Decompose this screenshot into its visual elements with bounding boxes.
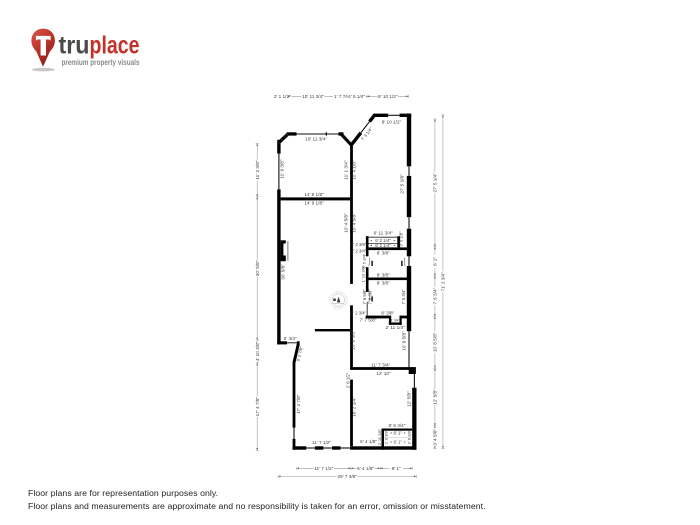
svg-text:14' 9 1/8": 14' 9 1/8" xyxy=(304,192,324,197)
svg-text:17' 4 7/8": 17' 4 7/8" xyxy=(255,397,260,417)
svg-text:7' 6 3/8": 7' 6 3/8" xyxy=(367,289,372,305)
svg-text:2' 8 1/2": 2' 8 1/2" xyxy=(345,372,350,388)
svg-text:2' 5 7/8": 2' 5 7/8" xyxy=(276,131,291,146)
svg-text:10' 4 5/8": 10' 4 5/8" xyxy=(343,213,348,233)
svg-text:12' 5/8": 12' 5/8" xyxy=(406,391,411,407)
svg-text:11' 1 3/4": 11' 1 3/4" xyxy=(343,160,348,179)
svg-text:10' 11 3/4": 10' 11 3/4" xyxy=(305,137,327,142)
svg-text:10' 8 5/8": 10' 8 5/8" xyxy=(351,330,356,350)
svg-text:1' 3/4": 1' 3/4" xyxy=(391,319,400,323)
svg-text:17' 4 7/8": 17' 4 7/8" xyxy=(296,394,301,414)
svg-text:6' 2 1/4": 6' 2 1/4" xyxy=(375,243,391,248)
svg-text:10' 8 5/8": 10' 8 5/8" xyxy=(433,332,438,352)
svg-text:2' 2 3/8": 2' 2 3/8" xyxy=(351,242,367,247)
svg-text:30' 5/8": 30' 5/8" xyxy=(255,260,260,276)
svg-text:place: place xyxy=(90,32,140,60)
svg-text:7' 6 3/4": 7' 6 3/4" xyxy=(401,289,406,305)
svg-text:6' 1": 6' 1" xyxy=(394,430,403,435)
svg-text:7' 7 5/8": 7' 7 5/8" xyxy=(360,317,377,322)
svg-text:6' 4 1/8": 6' 4 1/8" xyxy=(360,439,377,444)
svg-text:11' 9 3/8": 11' 9 3/8" xyxy=(279,159,284,178)
svg-text:8' 3/8": 8' 3/8" xyxy=(381,310,394,315)
svg-text:7' 6 3/4": 7' 6 3/4" xyxy=(433,287,438,304)
svg-text:1' 10 3/8": 1' 10 3/8" xyxy=(360,265,365,282)
svg-text:2' 2 3/4": 2' 2 3/4" xyxy=(351,249,367,254)
svg-text:30' 5/8": 30' 5/8" xyxy=(281,264,286,280)
svg-text:premium property visuals: premium property visuals xyxy=(62,58,140,67)
svg-text:27' 5 1/8": 27' 5 1/8" xyxy=(400,174,405,194)
svg-text:11' 4 1/8": 11' 4 1/8" xyxy=(352,160,357,179)
svg-text:2' 8 3/8": 2' 8 3/8" xyxy=(406,429,411,444)
svg-text:12' 10": 12' 10" xyxy=(376,371,391,376)
svg-text:10' 11 3/4": 10' 11 3/4" xyxy=(302,94,324,99)
svg-text:4' 10 3/8": 4' 10 3/8" xyxy=(255,341,260,361)
svg-text:71' 2 3/4": 71' 2 3/4" xyxy=(441,272,446,292)
svg-text:6' 4 1/8": 6' 4 1/8" xyxy=(357,466,374,471)
svg-text:5' 3/4": 5' 3/4" xyxy=(284,336,297,341)
svg-text:16' 2 1/4": 16' 2 1/4" xyxy=(351,397,356,417)
svg-text:8' 10 1/2": 8' 10 1/2" xyxy=(382,119,402,124)
svg-text:4' 5 1/4": 4' 5 1/4" xyxy=(348,94,365,99)
svg-text:2' 11 1/8": 2' 11 1/8" xyxy=(377,428,382,445)
svg-text:27' 5 1/4": 27' 5 1/4" xyxy=(433,173,438,193)
svg-text:8' 3/8": 8' 3/8" xyxy=(377,251,390,256)
svg-text:10' 8 5/8": 10' 8 5/8" xyxy=(401,331,406,351)
svg-text:tru: tru xyxy=(59,32,90,60)
svg-text:6' 11 3/4": 6' 11 3/4" xyxy=(374,230,393,235)
svg-text:6' 1": 6' 1" xyxy=(394,439,403,444)
svg-text:8' 3/8": 8' 3/8" xyxy=(377,273,390,278)
svg-text:8' 10 1/2": 8' 10 1/2" xyxy=(378,94,398,99)
svg-text:10' 4 5/8": 10' 4 5/8" xyxy=(352,213,357,233)
svg-text:3' 4 5/8": 3' 4 5/8" xyxy=(433,429,438,446)
svg-text:8' 5 3/4": 8' 5 3/4" xyxy=(389,423,406,428)
svg-text:14' 9 1/8": 14' 9 1/8" xyxy=(304,201,324,206)
svg-text:2' 11 1/4": 2' 11 1/4" xyxy=(386,325,405,330)
svg-text:29' 7 3/8": 29' 7 3/8" xyxy=(337,474,357,479)
svg-text:11' 7 3/4": 11' 7 3/4" xyxy=(371,362,390,367)
svg-text:6' 2": 6' 2" xyxy=(433,257,438,266)
svg-text:11' 7 1/2": 11' 7 1/2" xyxy=(314,466,333,471)
svg-text:2' 2 3/4": 2' 2 3/4" xyxy=(351,311,367,316)
svg-text:8' 1": 8' 1" xyxy=(392,466,401,471)
svg-text:2' 8 3/8": 2' 8 3/8" xyxy=(384,429,389,444)
svg-text:3' 5 1/8": 3' 5 1/8" xyxy=(398,231,403,247)
svg-text:7' 6 5/8": 7' 6 5/8" xyxy=(362,289,367,305)
svg-text:11' 3 3/8": 11' 3 3/8" xyxy=(255,160,260,179)
svg-text:12' 5/8": 12' 5/8" xyxy=(433,389,438,405)
svg-text:11' 7 1/2": 11' 7 1/2" xyxy=(312,440,331,445)
svg-text:8' 3/8": 8' 3/8" xyxy=(377,280,390,285)
